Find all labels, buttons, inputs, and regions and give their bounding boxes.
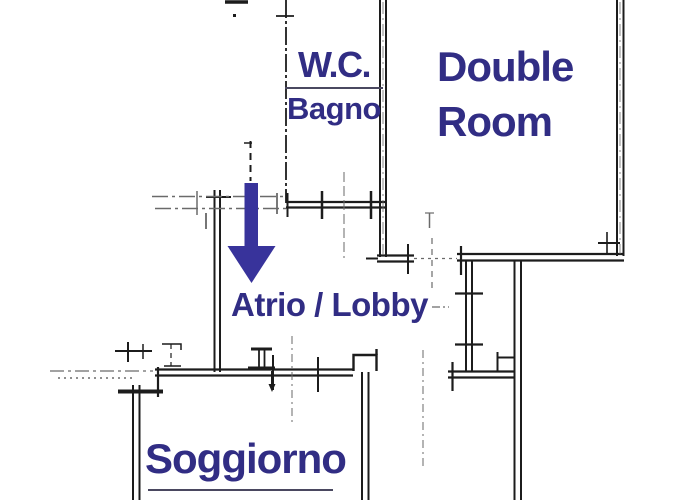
room-label-double-room: Double Room bbox=[437, 39, 573, 149]
column-ibeam-icon bbox=[248, 349, 275, 368]
floorplan: W.C. Bagno Double Room Atrio / Lobby Sog… bbox=[0, 0, 700, 500]
double-room-line1: Double bbox=[437, 39, 573, 94]
room-label-lobby: Atrio / Lobby bbox=[231, 285, 428, 325]
room-label-soggiorno: Soggiorno bbox=[145, 435, 346, 483]
wc-label-en: W.C. bbox=[283, 45, 385, 85]
entrance-arrow-icon bbox=[228, 183, 276, 283]
wc-label-it: Bagno bbox=[283, 92, 385, 126]
room-label-wc: W.C. Bagno bbox=[283, 45, 385, 126]
double-room-line2: Room bbox=[437, 94, 573, 149]
wc-label-divider bbox=[285, 87, 383, 89]
